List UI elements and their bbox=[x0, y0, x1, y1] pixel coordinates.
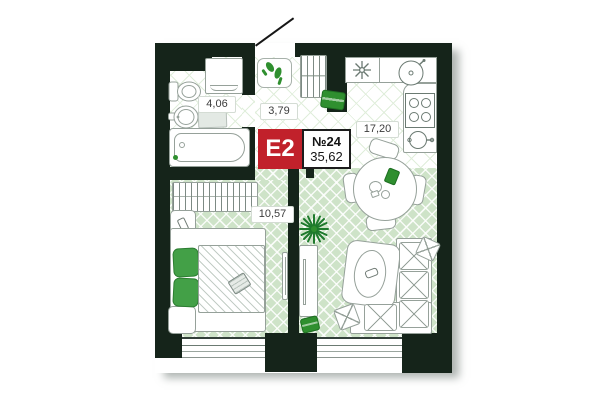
tv-screen-line bbox=[285, 257, 286, 295]
bathtub-tap bbox=[173, 155, 178, 160]
doormat-icon bbox=[320, 89, 346, 110]
room-label-bedroom: 10,57 bbox=[251, 206, 294, 223]
wall-bathroom-bedroom bbox=[155, 167, 255, 180]
apartment-number: №24 bbox=[312, 134, 341, 149]
cup bbox=[381, 190, 390, 199]
sofa-cushion bbox=[364, 304, 397, 331]
oven-icon bbox=[405, 128, 435, 153]
nightstand-icon bbox=[168, 306, 196, 334]
counter-divider bbox=[379, 58, 380, 82]
hob-symbol-icon bbox=[352, 60, 372, 80]
bathtub-basin bbox=[174, 133, 245, 162]
tv-console bbox=[299, 245, 318, 317]
wall-bottom-right-pier bbox=[402, 333, 452, 373]
toilet-icon bbox=[168, 78, 202, 105]
pillow-icon bbox=[172, 247, 199, 277]
bathtub-icon bbox=[169, 128, 250, 167]
bathtub-drain bbox=[179, 142, 185, 148]
badge-post bbox=[306, 169, 314, 178]
apartment-total-area: 35,62 bbox=[310, 149, 343, 164]
wardrobe-icon bbox=[172, 182, 258, 212]
living-window bbox=[317, 337, 402, 358]
wall-right bbox=[437, 43, 452, 340]
room-label-kitchen-living: 17,20 bbox=[356, 121, 399, 138]
wall-bottom-middle-pier bbox=[265, 333, 317, 372]
dining-table-icon bbox=[353, 157, 417, 221]
wall-bedroom-living-partition bbox=[288, 168, 299, 336]
sofa-chaise bbox=[340, 239, 401, 309]
sofa-cushion bbox=[399, 271, 429, 299]
room-label-bathroom: 4,06 bbox=[198, 96, 236, 113]
hob-icon bbox=[405, 93, 435, 128]
apartment-info: №24 35,62 bbox=[302, 129, 351, 169]
floor-plan: 4,06 3,79 17,20 10,57 E2 №24 35,62 bbox=[0, 0, 605, 403]
wall-bottom-left-pier bbox=[155, 333, 182, 358]
wall-bathroom-upper bbox=[242, 43, 255, 95]
pillow-icon bbox=[172, 277, 199, 307]
apartment-badge: E2 №24 35,62 bbox=[258, 129, 351, 169]
washing-machine-door bbox=[210, 85, 238, 91]
kitchen-sink-icon bbox=[397, 58, 427, 87]
tv-icon bbox=[303, 259, 306, 305]
bathroom-sink-icon bbox=[168, 104, 200, 130]
bedroom-tv-icon bbox=[282, 252, 288, 300]
unit-type-badge: E2 bbox=[258, 129, 302, 169]
sofa-cushion bbox=[399, 300, 429, 328]
plant-icon bbox=[298, 213, 330, 245]
floor-bath-door-threshold bbox=[242, 95, 255, 127]
shoes-tray bbox=[257, 58, 292, 88]
shoes-icon bbox=[258, 59, 291, 87]
bedroom-window bbox=[182, 337, 265, 358]
room-label-hallway: 3,79 bbox=[260, 103, 298, 120]
washing-machine-icon bbox=[205, 58, 243, 94]
